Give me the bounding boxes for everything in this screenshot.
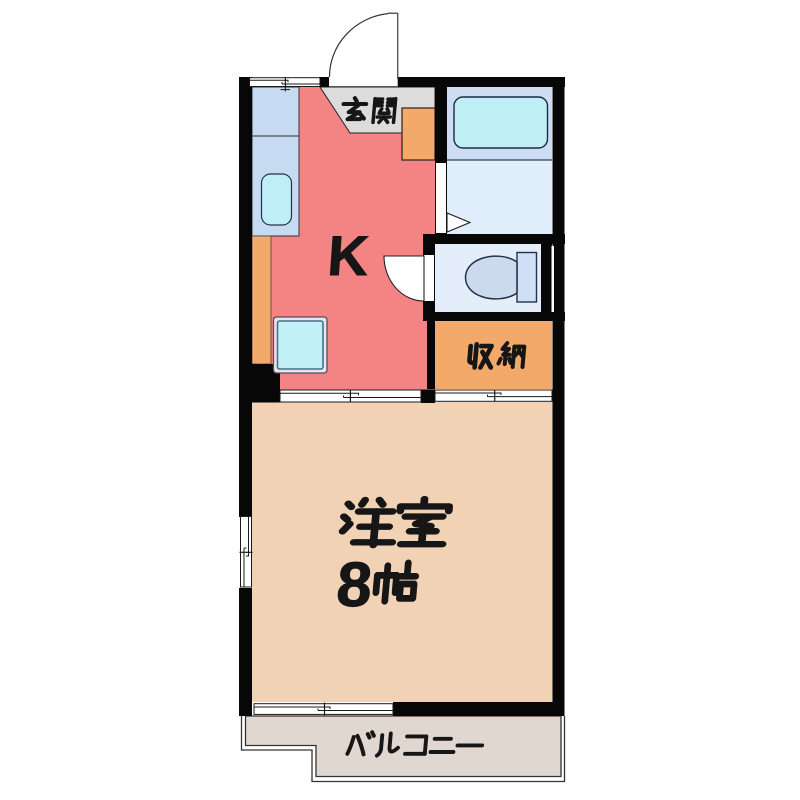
svg-text:8: 8	[334, 550, 374, 620]
svg-text:K: K	[326, 224, 371, 287]
